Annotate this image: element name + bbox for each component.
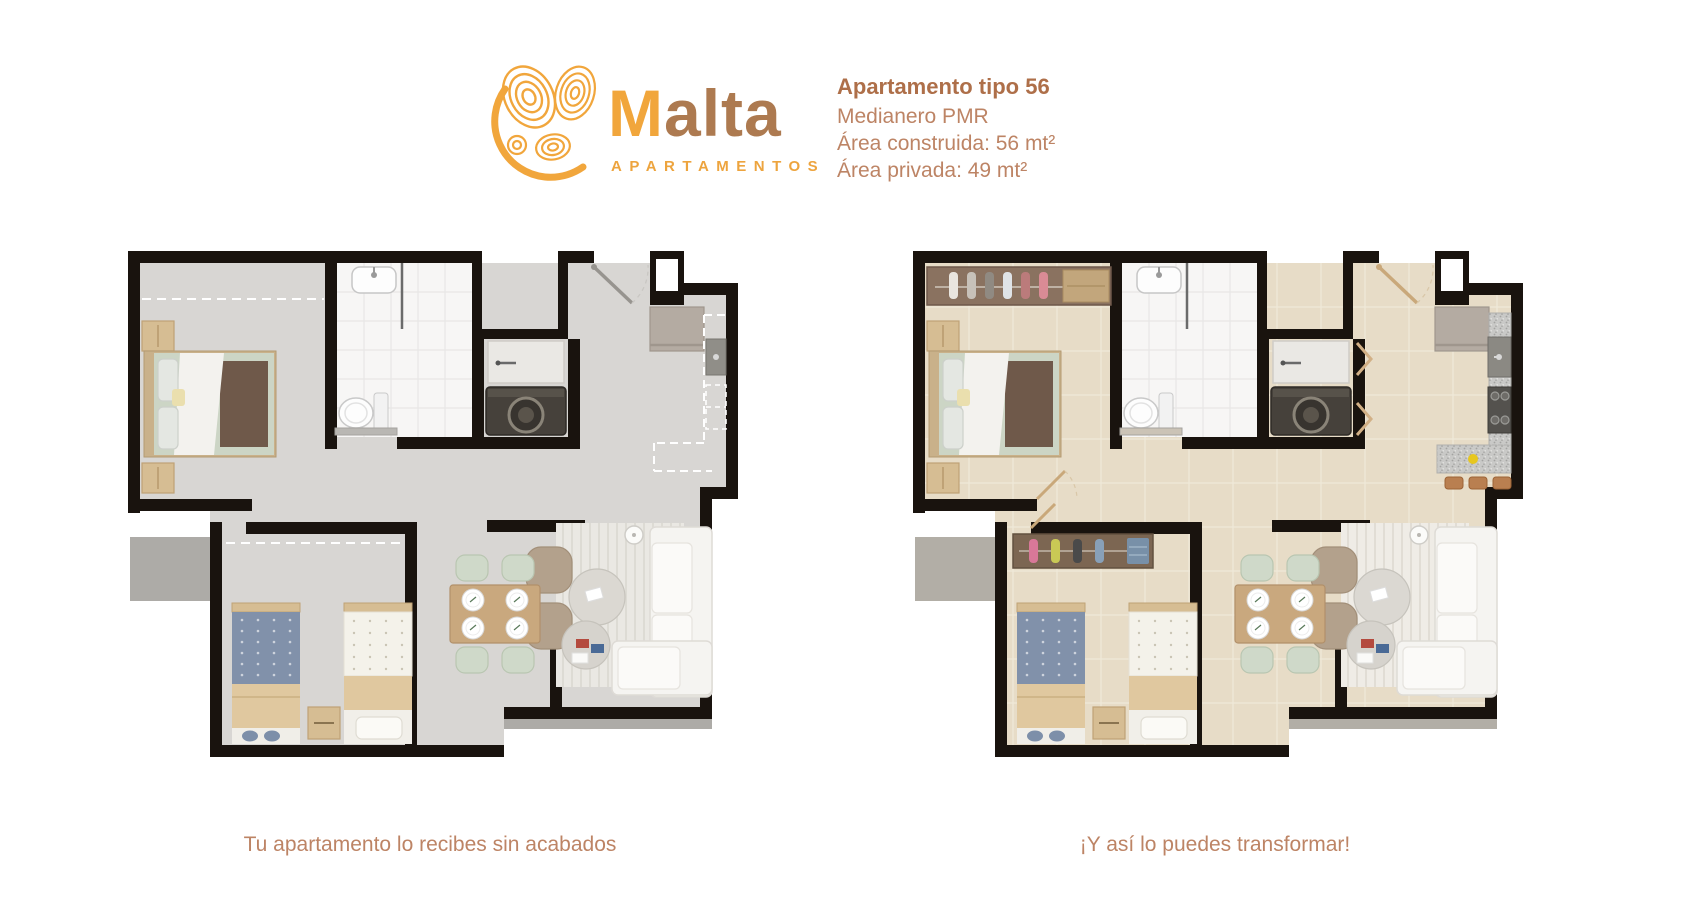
apartment-info: Apartamento tipo 56 Medianero PMR Área c…	[837, 73, 1055, 184]
brand-wordmark-rest: alta	[664, 76, 782, 150]
apartment-private-area: Área privada: 49 mt²	[837, 157, 1055, 184]
brand-wordmark-accent: M	[608, 76, 664, 150]
apartment-built-area: Área construida: 56 mt²	[837, 130, 1055, 157]
apartment-title: Apartamento tipo 56	[837, 73, 1055, 100]
caption-left: Tu apartamento lo recibes sin acabados	[120, 833, 740, 857]
page: Malta APARTAMENTOS Apartamento tipo 56 M…	[0, 0, 1701, 900]
apartment-subtitle: Medianero PMR	[837, 103, 1055, 130]
brand-subtitle: APARTAMENTOS	[611, 158, 825, 175]
floor-plan-unfinished	[120, 237, 740, 763]
brand-wordmark: Malta	[608, 80, 782, 146]
caption-right: ¡Y así lo puedes transformar!	[905, 833, 1525, 857]
malta-swirl-icon	[487, 55, 621, 181]
floor-plan-finished	[905, 237, 1525, 763]
